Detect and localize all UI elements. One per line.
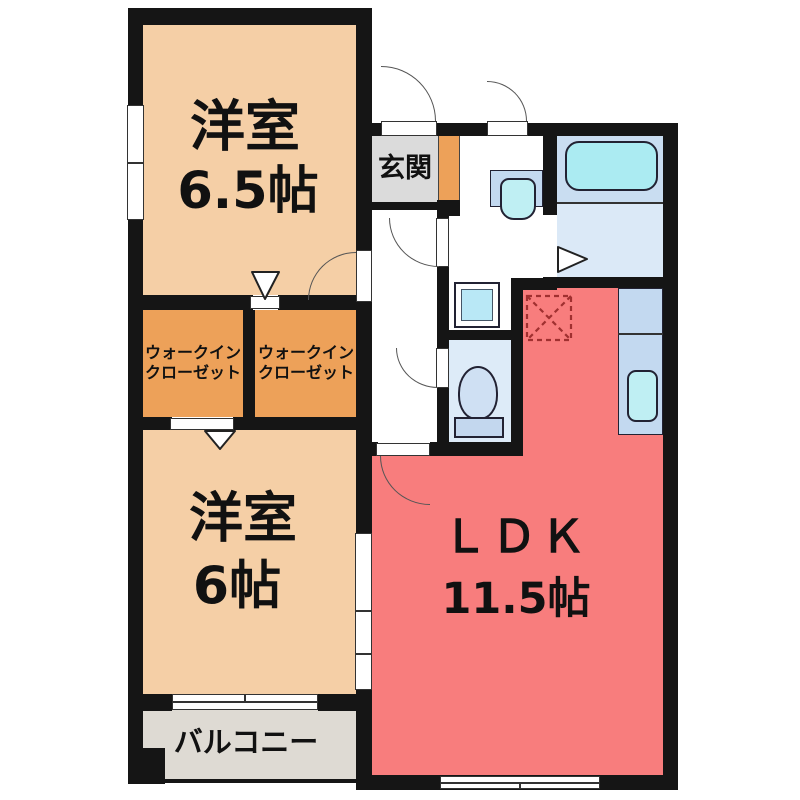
room-label-ldk: ＬＤＫ <box>442 509 589 565</box>
bathroom-door-marker <box>558 247 587 272</box>
room-size-bedroom-bottom: 6帖 <box>193 555 281 620</box>
room-size-bedroom-top: 6.5帖 <box>177 160 318 224</box>
room-label-wic-left: ウォークイン クローゼット <box>145 343 241 383</box>
room-label-bedroom-bottom: 洋室 <box>189 484 297 552</box>
room-label-balcony: バルコニー <box>174 724 318 760</box>
room-label-bedroom-top: 洋室 <box>190 93 300 162</box>
wic-right-door-marker <box>252 272 279 299</box>
room-size-ldk: 11.5帖 <box>441 573 590 627</box>
wic-left-door-marker <box>205 431 235 449</box>
floor-plan: 洋室 6.5帖 玄関 ウォークイン クローゼット ウォークイン クローゼット 洋… <box>0 0 800 800</box>
room-label-entrance: 玄関 <box>378 152 432 186</box>
room-label-wic-right: ウォークイン クローゼット <box>258 343 354 383</box>
wic-left-line1: ウォークイン <box>145 343 241 363</box>
wic-right-line2: クローゼット <box>258 363 354 383</box>
wic-left-line2: クローゼット <box>145 363 241 383</box>
refrigerator-space <box>527 296 571 340</box>
wic-right-line1: ウォークイン <box>258 343 354 363</box>
plan-markers <box>0 0 800 800</box>
